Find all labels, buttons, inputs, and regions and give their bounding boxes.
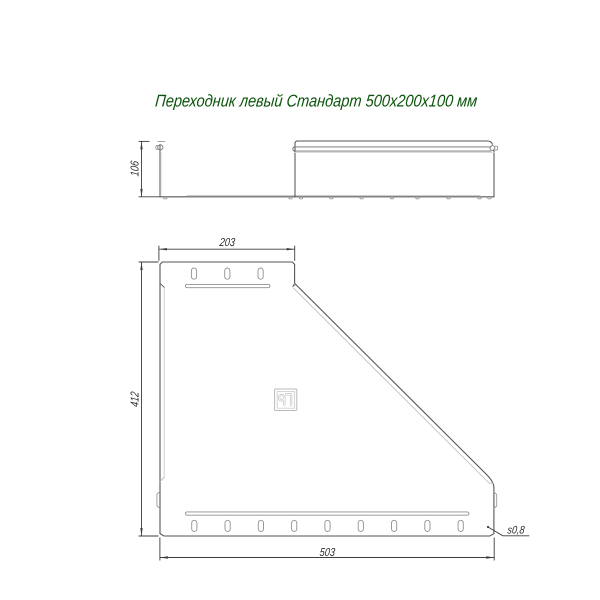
svg-text:412: 412 <box>129 390 141 407</box>
svg-text:503: 503 <box>319 547 336 559</box>
svg-text:203: 203 <box>218 237 236 249</box>
svg-text:106: 106 <box>129 160 141 177</box>
svg-text:Переходник левый Стандарт 500х: Переходник левый Стандарт 500х200х100 мм <box>154 92 478 111</box>
svg-text:s0,8: s0,8 <box>507 524 526 536</box>
